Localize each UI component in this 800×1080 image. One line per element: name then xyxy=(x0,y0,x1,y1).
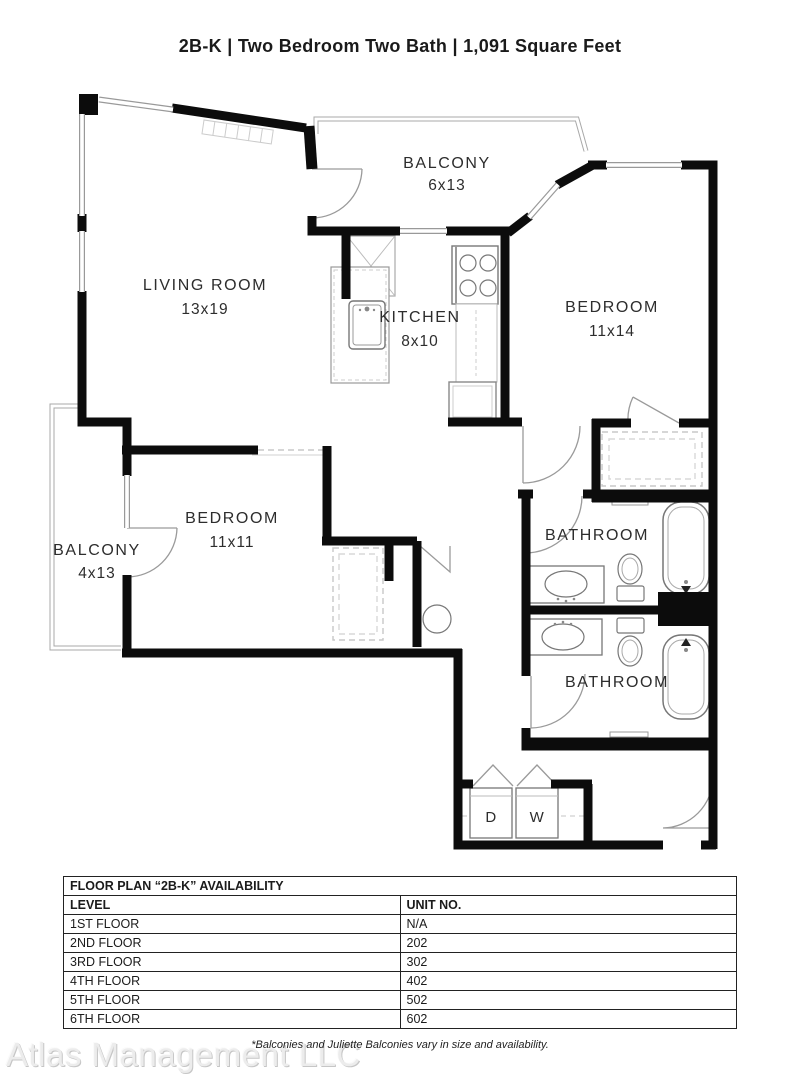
unit-cell: 202 xyxy=(400,934,737,953)
stove-icon xyxy=(452,246,498,304)
level-cell: 2ND FLOOR xyxy=(64,934,401,953)
room-dims-balcony-top: 6x13 xyxy=(428,177,466,194)
unit-cell: 302 xyxy=(400,953,737,972)
column-header-level: LEVEL xyxy=(64,896,401,915)
room-label-balcony-left: BALCONY xyxy=(53,542,141,559)
floor-plan-canvas: BALCONY 6x13 LIVING ROOM 13x19 KITCHEN 8… xyxy=(0,70,800,860)
room-dims-living-room: 13x19 xyxy=(181,301,228,318)
table-row: 2ND FLOOR 202 xyxy=(64,934,737,953)
room-label-bathroom-1: BATHROOM xyxy=(545,527,649,544)
fridge-icon xyxy=(449,382,496,421)
unit-cell: 602 xyxy=(400,1010,737,1029)
level-cell: 5TH FLOOR xyxy=(64,991,401,1010)
bathroom2-toilet-icon xyxy=(617,618,644,666)
table-header-row: LEVEL UNIT NO. xyxy=(64,896,737,915)
washer-label: W xyxy=(530,809,545,826)
table-row: 6TH FLOOR 602 xyxy=(64,1010,737,1029)
room-label-bathroom-2: BATHROOM xyxy=(565,674,669,691)
balcony-disclaimer-note: *Balconies and Juliette Balconies vary i… xyxy=(0,1039,800,1051)
level-cell: 4TH FLOOR xyxy=(64,972,401,991)
bathroom1-tub-icon xyxy=(663,502,709,594)
page-title: 2B-K | Two Bedroom Two Bath | 1,091 Squa… xyxy=(0,36,800,57)
room-dims-bedroom-2: 11x11 xyxy=(210,534,255,551)
unit-cell: N/A xyxy=(400,915,737,934)
bathroom1-vanity-icon xyxy=(528,566,604,603)
kitchen-counter-icon xyxy=(456,304,497,382)
bathroom2-tub-icon xyxy=(663,635,709,719)
level-cell: 6TH FLOOR xyxy=(64,1010,401,1029)
room-label-bedroom-1: BEDROOM xyxy=(565,299,659,316)
unit-cell: 402 xyxy=(400,972,737,991)
table-title: FLOOR PLAN “2B-K” AVAILABILITY xyxy=(64,877,737,896)
room-dims-balcony-left: 4x13 xyxy=(78,565,116,582)
table-title-row: FLOOR PLAN “2B-K” AVAILABILITY xyxy=(64,877,737,896)
unit-cell: 502 xyxy=(400,991,737,1010)
availability-table: FLOOR PLAN “2B-K” AVAILABILITY LEVEL UNI… xyxy=(63,876,737,1029)
floor-plan: BALCONY 6x13 LIVING ROOM 13x19 KITCHEN 8… xyxy=(0,70,800,860)
level-cell: 3RD FLOOR xyxy=(64,953,401,972)
table-row: 4TH FLOOR 402 xyxy=(64,972,737,991)
table-row: 3RD FLOOR 302 xyxy=(64,953,737,972)
table-row: 5TH FLOOR 502 xyxy=(64,991,737,1010)
bathroom1-toilet-icon xyxy=(617,554,644,601)
table-row: 1ST FLOOR N/A xyxy=(64,915,737,934)
bathroom2-towel-bar xyxy=(610,732,648,737)
room-label-kitchen: KITCHEN xyxy=(379,309,460,326)
level-cell: 1ST FLOOR xyxy=(64,915,401,934)
dryer-label: D xyxy=(485,809,496,826)
bathroom2-vanity-icon xyxy=(524,619,602,655)
room-dims-bedroom-1: 11x14 xyxy=(589,323,635,340)
column-header-unit: UNIT NO. xyxy=(400,896,737,915)
room-label-bedroom-2: BEDROOM xyxy=(185,510,279,527)
room-dims-kitchen: 8x10 xyxy=(401,333,439,350)
room-label-balcony-top: BALCONY xyxy=(403,155,491,172)
water-heater-icon xyxy=(423,605,451,633)
room-label-living-room: LIVING ROOM xyxy=(143,277,267,294)
